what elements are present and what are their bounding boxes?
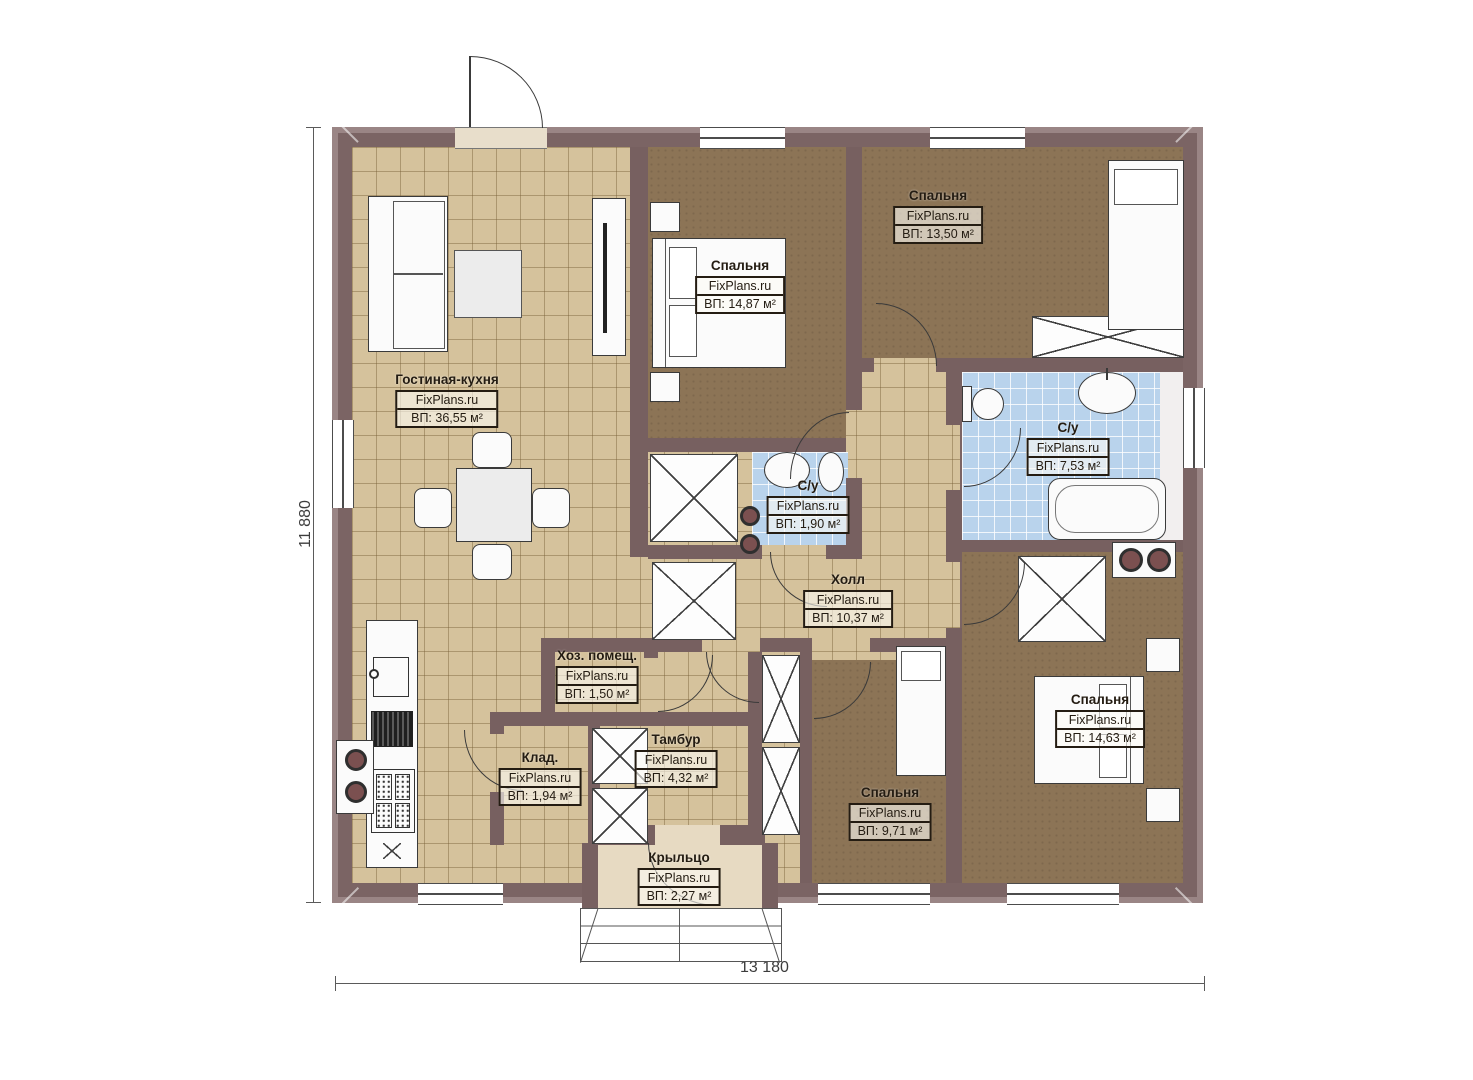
wall-segment	[762, 843, 778, 908]
washing-machine	[336, 740, 374, 814]
bed-single	[896, 646, 946, 776]
cabinet-x	[383, 843, 401, 859]
room-label-bedroom4: Спальня FixPlans.ru ВП: 14,63 м²	[1055, 692, 1145, 748]
nightstand	[1146, 638, 1180, 672]
room-name: Холл	[803, 572, 893, 588]
room-area: ВП: 4,32 м²	[637, 770, 716, 786]
window	[818, 883, 930, 905]
faucet	[369, 669, 379, 679]
room-label-living-kitchen: Гостиная-кухня FixPlans.ru ВП: 36,55 м²	[395, 372, 498, 428]
wall-segment	[946, 490, 962, 562]
wall-segment	[946, 628, 962, 883]
wall-segment	[582, 843, 598, 908]
room-name: Крыльцо	[638, 850, 721, 866]
room-label-vestibule: Тамбур FixPlans.ru ВП: 4,32 м²	[635, 732, 718, 788]
room-label-porch: Крыльцо FixPlans.ru ВП: 2,27 м²	[638, 850, 721, 906]
stove	[371, 769, 415, 833]
room-label-bedroom2: Спальня FixPlans.ru ВП: 13,50 м²	[893, 188, 983, 244]
wardrobe	[1018, 556, 1106, 642]
closet	[762, 747, 800, 835]
room-name: Гостиная-кухня	[395, 372, 498, 388]
bed-single	[1108, 160, 1184, 330]
room-label-storage: Клад. FixPlans.ru ВП: 1,94 м²	[499, 750, 582, 806]
porch-steps	[580, 908, 782, 962]
room-name: Хоз. помещ.	[556, 648, 639, 664]
brand-watermark: FixPlans.ru	[1057, 712, 1143, 730]
wall-segment	[936, 358, 1183, 372]
room-area: ВП: 1,90 м²	[769, 516, 848, 532]
dish-rack	[371, 711, 413, 747]
room-label-bedroom1: Спальня FixPlans.ru ВП: 14,87 м²	[695, 258, 785, 314]
window	[1183, 388, 1205, 468]
wardrobe	[650, 454, 738, 542]
room-label-hall: Холл FixPlans.ru ВП: 10,37 м²	[803, 572, 893, 628]
chair	[414, 488, 452, 528]
brand-watermark: FixPlans.ru	[501, 770, 580, 788]
closet	[762, 655, 800, 743]
entrance-opening	[455, 127, 547, 149]
toilet-tank	[962, 386, 972, 422]
room-label-wc-small: С/у FixPlans.ru ВП: 1,90 м²	[767, 478, 850, 534]
nightstand	[650, 372, 680, 402]
chair	[472, 544, 512, 580]
brand-watermark: FixPlans.ru	[640, 870, 719, 888]
room-area: ВП: 1,94 м²	[501, 788, 580, 804]
wall-segment	[826, 545, 862, 559]
wall-segment	[490, 712, 762, 726]
brand-watermark: FixPlans.ru	[769, 498, 848, 516]
nightstand	[1146, 788, 1180, 822]
closet	[592, 788, 648, 844]
dim-tick	[1204, 976, 1205, 991]
dim-tick	[335, 976, 336, 991]
room-name: Спальня	[695, 258, 785, 274]
room-name: С/у	[1027, 420, 1110, 436]
dim-tick	[306, 127, 321, 128]
room-area: ВП: 10,37 м²	[805, 610, 891, 626]
brand-watermark: FixPlans.ru	[851, 805, 930, 823]
wall-segment	[800, 638, 812, 883]
brand-watermark: FixPlans.ru	[895, 208, 981, 226]
brand-watermark: FixPlans.ru	[397, 392, 496, 410]
room-label-utility: Хоз. помещ. FixPlans.ru ВП: 1,50 м²	[556, 648, 639, 704]
wall-segment	[630, 147, 648, 557]
room-name: Спальня	[893, 188, 983, 204]
dim-line-bottom	[335, 983, 1205, 984]
wall-segment	[644, 638, 658, 658]
nightstand	[650, 202, 680, 232]
floor-plan-canvas: 11 880 13 180	[0, 0, 1473, 1080]
room-area: ВП: 13,50 м²	[895, 226, 981, 242]
room-name: Клад.	[499, 750, 582, 766]
washer-knob	[740, 534, 760, 554]
chair	[472, 432, 512, 468]
room-area: ВП: 7,53 м²	[1029, 458, 1108, 474]
room-name: С/у	[767, 478, 850, 494]
wall-segment	[946, 365, 962, 425]
room-area: ВП: 2,27 м²	[640, 888, 719, 904]
dining-table	[456, 468, 532, 542]
wall-segment	[720, 825, 765, 845]
brand-watermark: FixPlans.ru	[637, 752, 716, 770]
room-label-wc-big: С/у FixPlans.ru ВП: 7,53 м²	[1027, 420, 1110, 476]
bathtub	[1048, 478, 1166, 540]
room-name: Тамбур	[635, 732, 718, 748]
entrance-door-arc	[470, 56, 543, 128]
porch-doorway	[655, 825, 720, 845]
sofa	[368, 196, 448, 352]
window	[930, 127, 1025, 149]
kitchen-sink	[373, 657, 409, 697]
washer-knob	[740, 506, 760, 526]
washer-dryer	[1112, 542, 1176, 578]
wardrobe	[652, 562, 736, 640]
room-label-bedroom3: Спальня FixPlans.ru ВП: 9,71 м²	[849, 785, 932, 841]
room-area: ВП: 36,55 м²	[397, 410, 496, 426]
room-name: Спальня	[849, 785, 932, 801]
brand-watermark: FixPlans.ru	[558, 668, 637, 686]
sink-faucet	[1106, 368, 1108, 380]
window	[1007, 883, 1119, 905]
toilet-bowl	[972, 388, 1004, 420]
room-area: ВП: 9,71 м²	[851, 823, 930, 839]
brand-watermark: FixPlans.ru	[697, 278, 783, 296]
coffee-table	[454, 250, 522, 318]
brand-watermark: FixPlans.ru	[805, 592, 891, 610]
wall-segment	[846, 147, 862, 410]
dim-tick	[306, 902, 321, 903]
window	[418, 883, 503, 905]
tv-stand	[592, 198, 626, 356]
window	[700, 127, 785, 149]
brand-watermark: FixPlans.ru	[1029, 440, 1108, 458]
window	[332, 420, 354, 508]
room-area: ВП: 14,87 м²	[697, 296, 783, 312]
room-name: Спальня	[1055, 692, 1145, 708]
chair	[532, 488, 570, 528]
wall-segment	[862, 358, 874, 372]
room-area: ВП: 1,50 м²	[558, 686, 637, 702]
dim-height-label: 11 880	[297, 500, 315, 548]
room-area: ВП: 14,63 м²	[1057, 730, 1143, 746]
